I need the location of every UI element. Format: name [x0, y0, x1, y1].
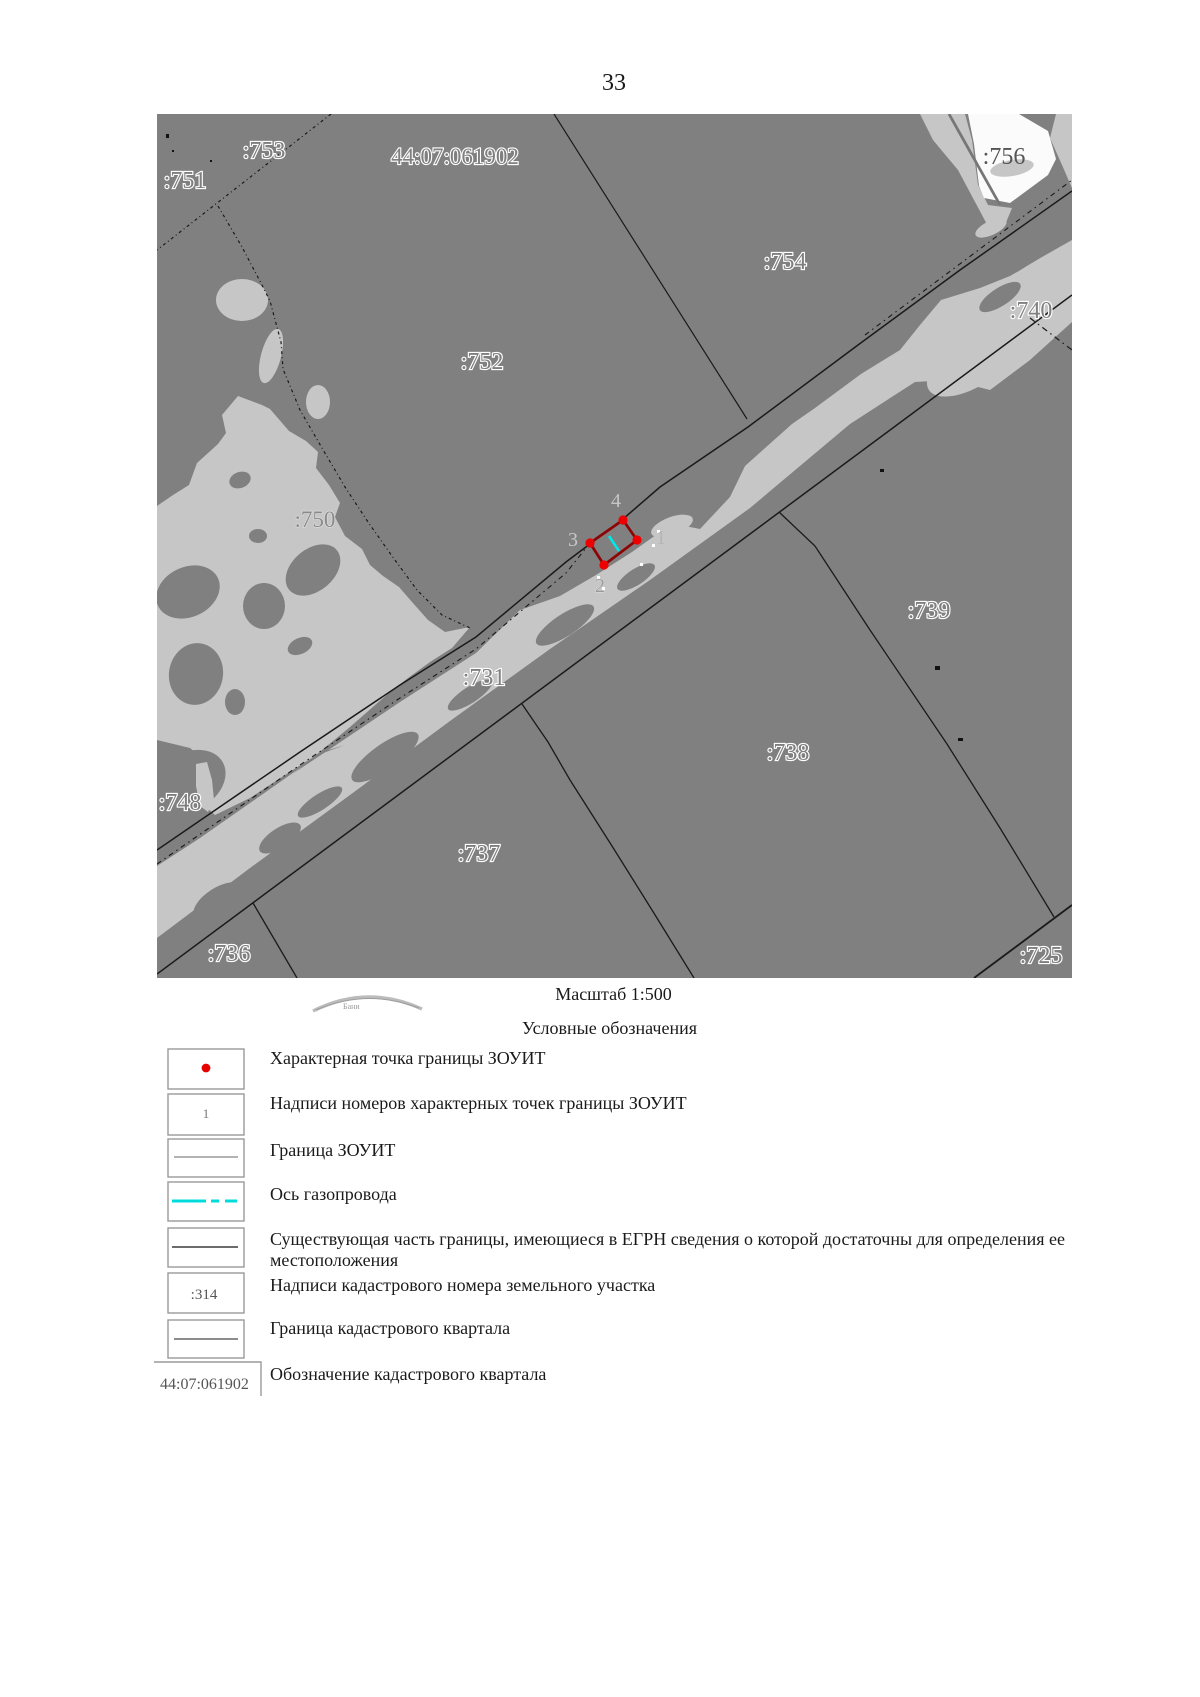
- svg-text:44:07:061902: 44:07:061902: [160, 1376, 249, 1393]
- svg-text::725: :725: [1020, 943, 1063, 969]
- svg-text:2: 2: [595, 575, 605, 597]
- svg-text::748: :748: [159, 790, 202, 816]
- svg-text::754: :754: [764, 249, 807, 275]
- svg-text::756: :756: [983, 144, 1026, 170]
- svg-text::314: :314: [191, 1287, 218, 1303]
- svg-text::753: :753: [243, 138, 286, 164]
- svg-text:1: 1: [203, 1106, 210, 1121]
- svg-text::752: :752: [461, 349, 504, 375]
- svg-text::731: :731: [463, 665, 506, 691]
- svg-text::750: :750: [295, 507, 336, 532]
- svg-text::751: :751: [164, 168, 207, 194]
- svg-text::739: :739: [908, 598, 951, 624]
- svg-text:3: 3: [568, 529, 578, 551]
- svg-text:4: 4: [611, 490, 621, 512]
- svg-text:1: 1: [656, 527, 666, 549]
- svg-text::737: :737: [458, 841, 501, 867]
- svg-text:44:07:061902: 44:07:061902: [391, 144, 519, 169]
- svg-text::740: :740: [1010, 298, 1053, 324]
- svg-text::736: :736: [208, 941, 251, 967]
- svg-text::738: :738: [767, 740, 810, 766]
